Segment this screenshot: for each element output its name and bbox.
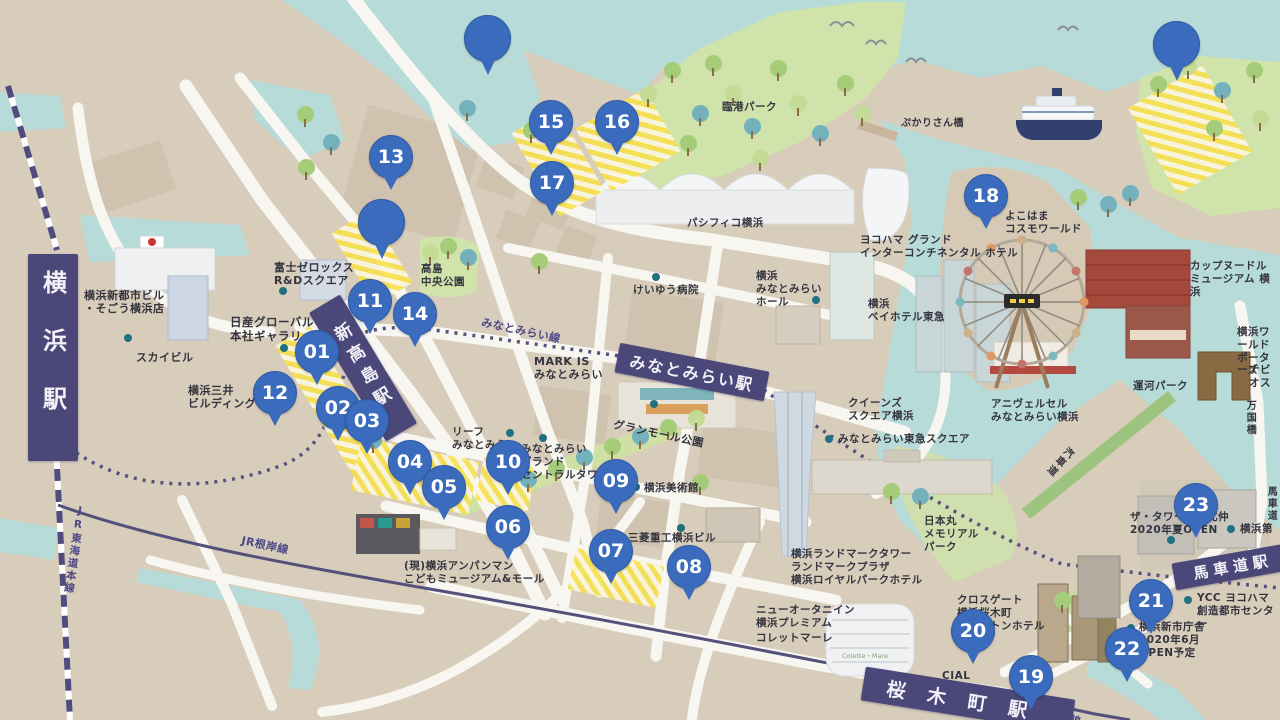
marker-number: 06	[486, 505, 530, 549]
tree-icon	[725, 85, 742, 102]
pin-tail-icon	[1169, 64, 1185, 81]
station-band-yokohama: 横浜駅	[28, 254, 78, 461]
map-label-pukarisan-bridge: ぷかりさん橋	[901, 118, 964, 130]
marker-number: 03	[345, 399, 389, 443]
marker-number: 19	[1009, 655, 1053, 699]
location-dot	[279, 287, 287, 295]
marker-tail-icon	[500, 545, 516, 560]
station-band-bashamichi: 馬車道駅	[1172, 542, 1280, 589]
map-marker-23[interactable]: 23	[1174, 483, 1218, 527]
location-dot	[280, 344, 288, 352]
map-marker-08[interactable]: 08	[667, 545, 711, 589]
map-label-colette-mare: コレットマーレ	[756, 632, 833, 645]
tree-icon	[664, 62, 681, 79]
map-label-mark-is: MARK IS みなとみらい	[534, 355, 603, 382]
tree-icon	[854, 105, 871, 122]
tree-icon	[692, 105, 709, 122]
tree-icon	[531, 253, 548, 270]
marker-tail-icon	[608, 499, 624, 514]
map-marker-10[interactable]: 10	[486, 440, 530, 484]
map-label-mitsui-building: 横浜三井 ビルディング	[188, 384, 256, 411]
marker-tail-icon	[543, 140, 559, 155]
tree-icon	[812, 125, 829, 142]
map-marker-07[interactable]: 07	[589, 529, 633, 573]
map-label-fuji-xerox: 富士ゼロックス R&Dスクエア	[274, 261, 354, 288]
map-overlay: 横浜新都市ビル ・そごう横浜店スカイビル日産グローバル 本社ギャラリー富士ゼロッ…	[0, 0, 1280, 720]
tree-icon	[1122, 185, 1139, 202]
location-dot	[650, 400, 658, 408]
marker-number: 12	[253, 371, 297, 415]
map-label-ycc: YCC ヨコハマ 創造都市センター	[1197, 592, 1280, 630]
tree-icon	[1214, 82, 1231, 99]
marker-number: 17	[530, 161, 574, 205]
map-label-cupnoodles-museum: カップヌードル ミュージアム 横浜	[1190, 260, 1280, 298]
marker-number: 09	[594, 459, 638, 503]
map-marker-16[interactable]: 16	[595, 100, 639, 144]
map-marker-05[interactable]: 05	[422, 465, 466, 509]
marker-number: 14	[393, 292, 437, 336]
tree-icon	[837, 75, 854, 92]
map-pin-1[interactable]	[464, 15, 511, 62]
tree-icon	[1054, 592, 1071, 609]
location-dot	[677, 524, 685, 532]
station-band-minatomirai: みなとみらい駅	[615, 343, 770, 401]
highlight-zone-8	[1128, 65, 1252, 195]
marker-tail-icon	[544, 201, 560, 216]
location-dot	[1167, 536, 1175, 544]
tree-icon	[1246, 62, 1263, 79]
map-marker-18[interactable]: 18	[964, 174, 1008, 218]
tree-icon	[705, 55, 722, 72]
marker-tail-icon	[436, 505, 452, 520]
map-pin-2[interactable]	[358, 199, 405, 246]
map-label-bankoku-bridge: 万国橋	[1243, 400, 1255, 436]
map-label-keiyu-hospital: けいゆう病院	[633, 284, 699, 297]
marker-tail-icon	[1119, 667, 1135, 682]
map-label-mitsubishi-building: 三菱重工横浜ビル	[628, 532, 716, 545]
location-dot	[124, 334, 132, 342]
map-marker-03[interactable]: 03	[345, 399, 389, 443]
tree-icon	[297, 106, 314, 123]
marker-tail-icon	[609, 140, 625, 155]
map-label-yokohama-daini: 横浜第	[1240, 523, 1273, 536]
marker-number: 15	[529, 100, 573, 144]
map-label-cosmo-world: よこはま コスモワールド	[1005, 210, 1082, 236]
map-marker-22[interactable]: 22	[1105, 627, 1149, 671]
tree-icon	[1206, 120, 1223, 137]
marker-number: 13	[369, 135, 413, 179]
location-dot	[539, 434, 547, 442]
marker-tail-icon	[978, 214, 994, 229]
tree-icon	[744, 118, 761, 135]
map-label-takashima-central-park: 高島 中央公園	[421, 263, 465, 289]
location-dot	[652, 273, 660, 281]
marker-number: 07	[589, 529, 633, 573]
marker-tail-icon	[362, 319, 378, 334]
marker-tail-icon	[965, 649, 981, 664]
marker-tail-icon	[383, 175, 399, 190]
map-label-queens-square: クイーンズ スクエア横浜	[848, 397, 914, 423]
map-label-pacifico: パシフィコ横浜	[687, 217, 764, 230]
map-label-new-otani-inn: ニューオータニイン 横浜プレミアム	[756, 604, 855, 630]
marker-tail-icon	[407, 332, 423, 347]
marker-number: 01	[295, 330, 339, 374]
tree-icon	[770, 60, 787, 77]
marker-number: 18	[964, 174, 1008, 218]
tree-icon	[912, 488, 929, 505]
tree-icon	[422, 244, 439, 261]
map-pin-3[interactable]	[1153, 21, 1200, 68]
tree-icon	[298, 159, 315, 176]
map-label-minatomirai-line: みなとみらい線	[480, 316, 562, 346]
tree-icon	[1070, 189, 1087, 206]
tree-icon	[640, 86, 657, 103]
map-label-nippon-maru-park: 日本丸 メモリアル パーク	[924, 515, 979, 553]
pin-tail-icon	[374, 242, 390, 259]
marker-number: 20	[951, 609, 995, 653]
map-label-intercontinental: ヨコハマ グランド インターコンチネンタル ホテル	[860, 234, 1018, 260]
map-label-sky-building: スカイビル	[136, 351, 194, 364]
location-dot	[825, 435, 833, 443]
marker-tail-icon	[1188, 523, 1204, 538]
tree-icon	[323, 134, 340, 151]
map-label-bashamichi-street: 馬車道	[1264, 486, 1276, 522]
tree-icon	[680, 135, 697, 152]
tree-icon	[440, 238, 457, 255]
map-label-anniversaire: アニヴェルセル みなとみらい横浜	[991, 398, 1079, 424]
map-marker-01[interactable]: 01	[295, 330, 339, 374]
map-marker-06[interactable]: 06	[486, 505, 530, 549]
tree-icon	[752, 150, 769, 167]
map-label-jr-negishi-line: JR根岸線	[240, 534, 290, 557]
map-marker-09[interactable]: 09	[594, 459, 638, 503]
map-label-kishamichi: 汽車道	[1042, 443, 1075, 478]
location-dot	[1184, 596, 1192, 604]
yokohama-map: 横浜新都市ビル ・そごう横浜店スカイビル日産グローバル 本社ギャラリー富士ゼロッ…	[0, 0, 1280, 720]
map-marker-20[interactable]: 20	[951, 609, 995, 653]
marker-number: 05	[422, 465, 466, 509]
map-label-anpanman-museum: (現)横浜アンパンマン こどもミュージアム&モール	[404, 560, 545, 586]
map-marker-17[interactable]: 17	[530, 161, 574, 205]
map-marker-15[interactable]: 15	[529, 100, 573, 144]
pin-balloon-icon	[1153, 21, 1200, 68]
marker-tail-icon	[603, 569, 619, 584]
map-label-bay-hotel: 横浜 ベイホテル東急	[868, 298, 945, 324]
map-marker-11[interactable]: 11	[348, 279, 392, 323]
marker-tail-icon	[359, 439, 375, 454]
tree-icon	[883, 483, 900, 500]
map-label-landmark-tower: 横浜ランドマークタワー ランドマークプラザ 横浜ロイヤルパークホテル	[791, 548, 923, 586]
tree-icon	[688, 410, 705, 427]
pin-balloon-icon	[464, 15, 511, 62]
marker-tail-icon	[1023, 695, 1039, 710]
map-marker-14[interactable]: 14	[393, 292, 437, 336]
marker-number: 16	[595, 100, 639, 144]
marker-number: 10	[486, 440, 530, 484]
marker-tail-icon	[500, 480, 516, 495]
tree-icon	[1150, 76, 1167, 93]
map-label-unga-park: 運河パーク	[1133, 380, 1188, 393]
map-marker-21[interactable]: 21	[1129, 579, 1173, 623]
marker-tail-icon	[402, 480, 418, 495]
map-label-sogo: 横浜新都市ビル ・そごう横浜店	[84, 289, 165, 316]
map-marker-19[interactable]: 19	[1009, 655, 1053, 699]
marker-tail-icon	[309, 370, 325, 385]
map-label-museum-of-art: 横浜美術館	[644, 482, 699, 495]
map-marker-13[interactable]: 13	[369, 135, 413, 179]
map-label-tokyu-square: みなとみらい東急スクエア	[838, 433, 970, 446]
tree-icon	[790, 95, 807, 112]
marker-tail-icon	[267, 411, 283, 426]
map-label-rinko-park: 臨港パーク	[722, 101, 777, 114]
tree-icon	[459, 100, 476, 117]
marker-number: 11	[348, 279, 392, 323]
pin-tail-icon	[480, 58, 496, 75]
marker-number: 22	[1105, 627, 1149, 671]
map-label-mm-hall: 横浜 みなとみらい ホール	[756, 270, 822, 308]
map-label-colette-sign: Colette・Mare	[842, 653, 888, 661]
marker-tail-icon	[330, 426, 346, 441]
marker-number: 23	[1174, 483, 1218, 527]
marker-number: 08	[667, 545, 711, 589]
map-marker-12[interactable]: 12	[253, 371, 297, 415]
pin-balloon-icon	[358, 199, 405, 246]
map-label-jr-tokaido-line: JR東海道本線	[61, 504, 86, 595]
tree-icon	[1252, 110, 1269, 127]
tree-icon	[1100, 196, 1117, 213]
map-label-navios: ナビオス	[1249, 364, 1280, 390]
marker-number: 21	[1129, 579, 1173, 623]
marker-tail-icon	[681, 585, 697, 600]
